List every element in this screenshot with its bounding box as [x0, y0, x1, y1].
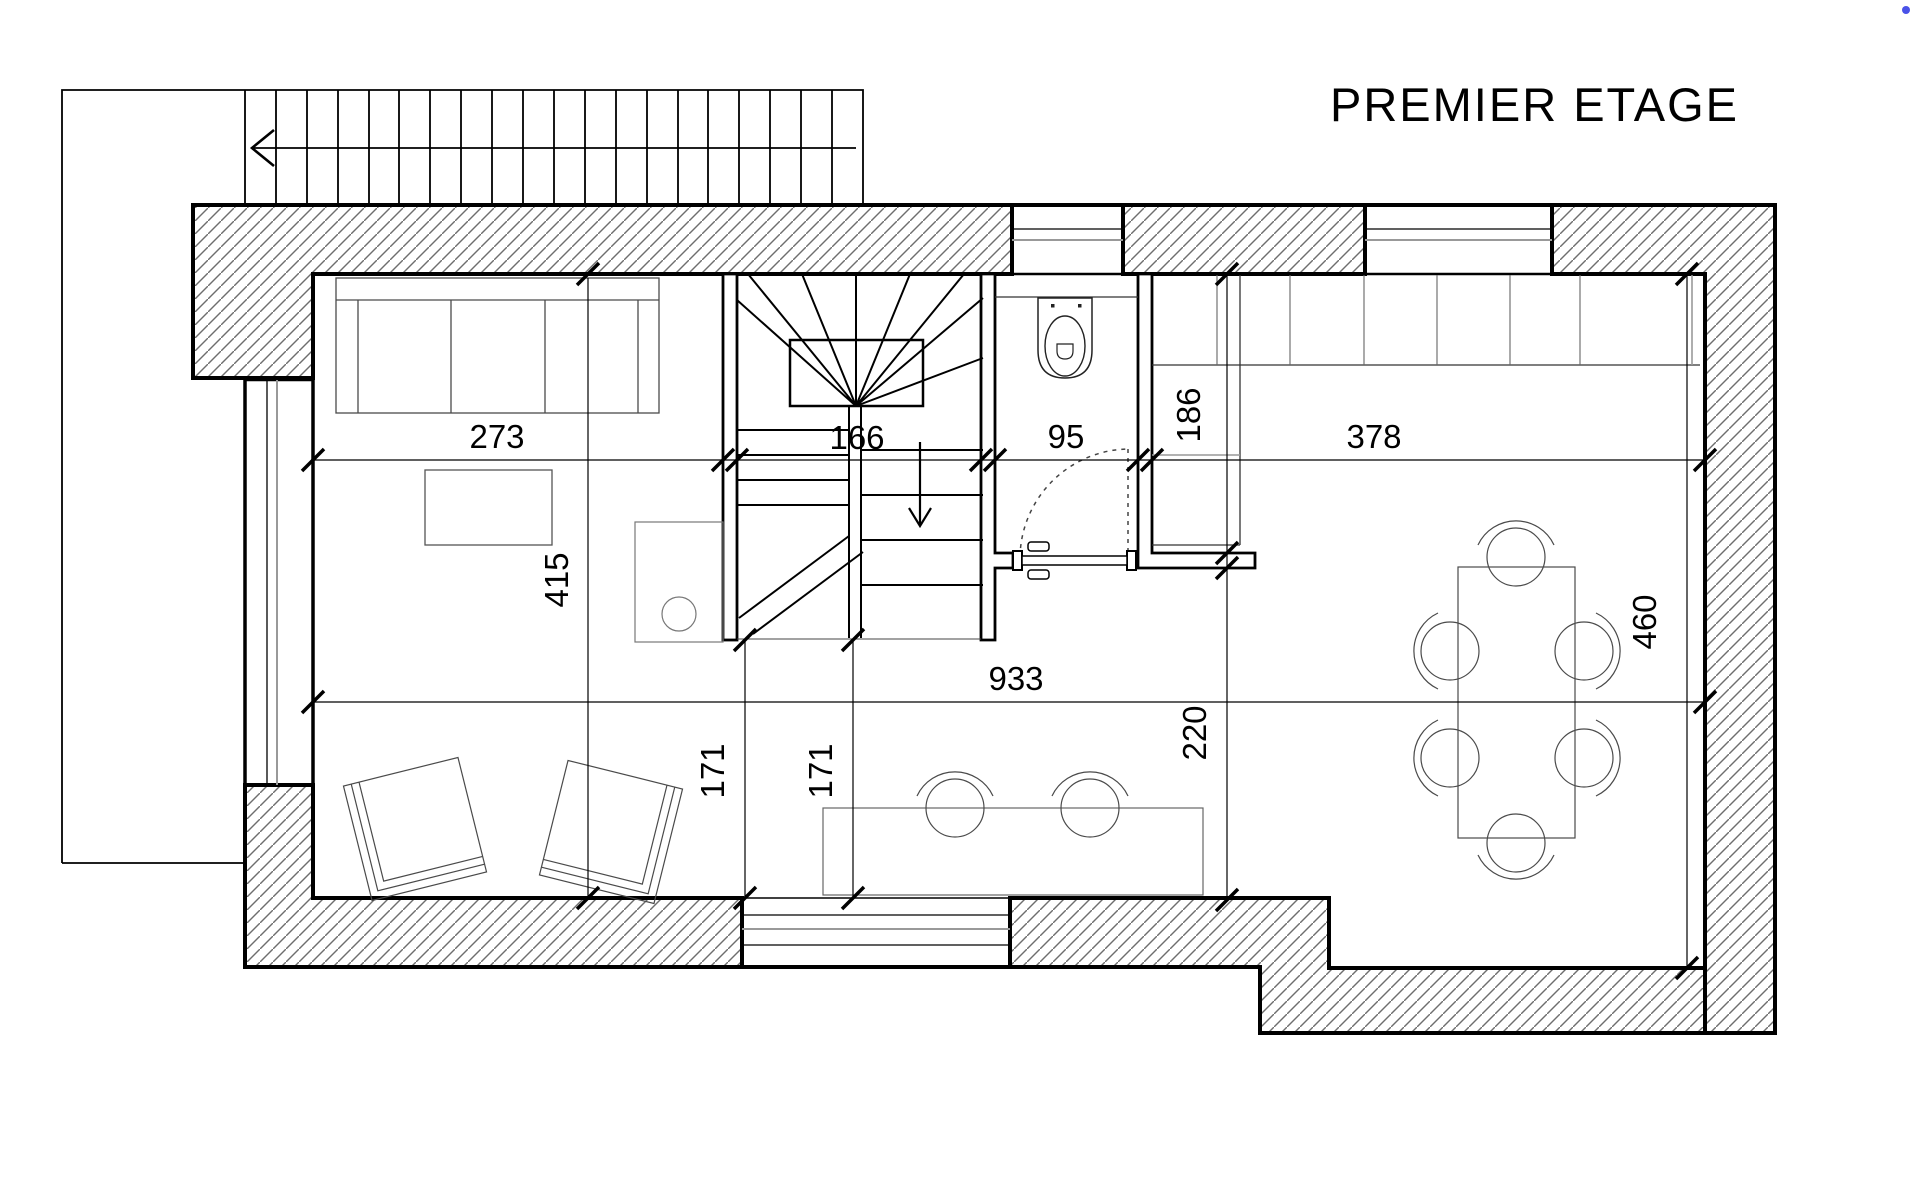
desk — [425, 470, 552, 545]
floor-plan-page: PREMIER ETAGE — [0, 0, 1920, 1200]
armchair-left — [343, 757, 486, 900]
wall-bottom-right-step — [1010, 898, 1705, 1033]
window-bottom — [742, 898, 1010, 967]
stool-2 — [1052, 772, 1128, 837]
dim-dining-depth: 460 — [1626, 594, 1663, 649]
stool-1 — [917, 772, 993, 837]
console-table — [823, 808, 1203, 895]
dim-living-width: 273 — [469, 418, 524, 455]
interior-partitions — [723, 274, 1255, 640]
dining-chair — [1555, 613, 1620, 689]
dim-wc-width: 95 — [1048, 418, 1085, 455]
stair-core — [737, 274, 983, 639]
wall-left-and-bottom-left — [245, 785, 742, 967]
wall-top-left — [193, 205, 1012, 378]
dim-stair-width: 166 — [829, 419, 884, 456]
sofa — [336, 278, 659, 413]
dimension-ticks — [302, 263, 1716, 979]
dim-stair-clearance-right: 171 — [802, 743, 839, 798]
page-title: PREMIER ETAGE — [1330, 78, 1739, 131]
exterior-stairs — [245, 90, 856, 205]
armchair-right — [539, 760, 682, 903]
dining-chair — [1478, 814, 1554, 879]
wc-door — [1013, 449, 1136, 579]
dim-passage-depth: 220 — [1176, 705, 1213, 760]
dining-chair — [1414, 613, 1479, 689]
toilet-icon — [1038, 298, 1092, 378]
floor-plan-canvas: PREMIER ETAGE — [0, 0, 1920, 1200]
dining-chair — [1555, 720, 1620, 796]
dim-stair-clearance-left: 171 — [694, 743, 731, 798]
cursor-dot — [1902, 6, 1910, 14]
window-left — [245, 380, 313, 785]
window-top-1 — [1012, 229, 1123, 240]
kitchen-counters — [1152, 275, 1700, 545]
stair-down-arrow-icon — [909, 442, 931, 526]
dim-living-depth: 415 — [538, 552, 575, 607]
wall-top-right-and-right — [1552, 205, 1775, 1033]
side-cabinet — [635, 522, 723, 642]
window-top-2 — [1365, 229, 1552, 240]
dining-chair — [1414, 720, 1479, 796]
dining-chairs — [1414, 521, 1620, 879]
dining-chair — [1478, 521, 1554, 586]
dim-kitchen-width: 378 — [1346, 418, 1401, 455]
dim-kitchen-depth: 186 — [1170, 387, 1207, 442]
wall-top-middle — [1123, 205, 1365, 274]
dim-overall-width: 933 — [988, 660, 1043, 697]
